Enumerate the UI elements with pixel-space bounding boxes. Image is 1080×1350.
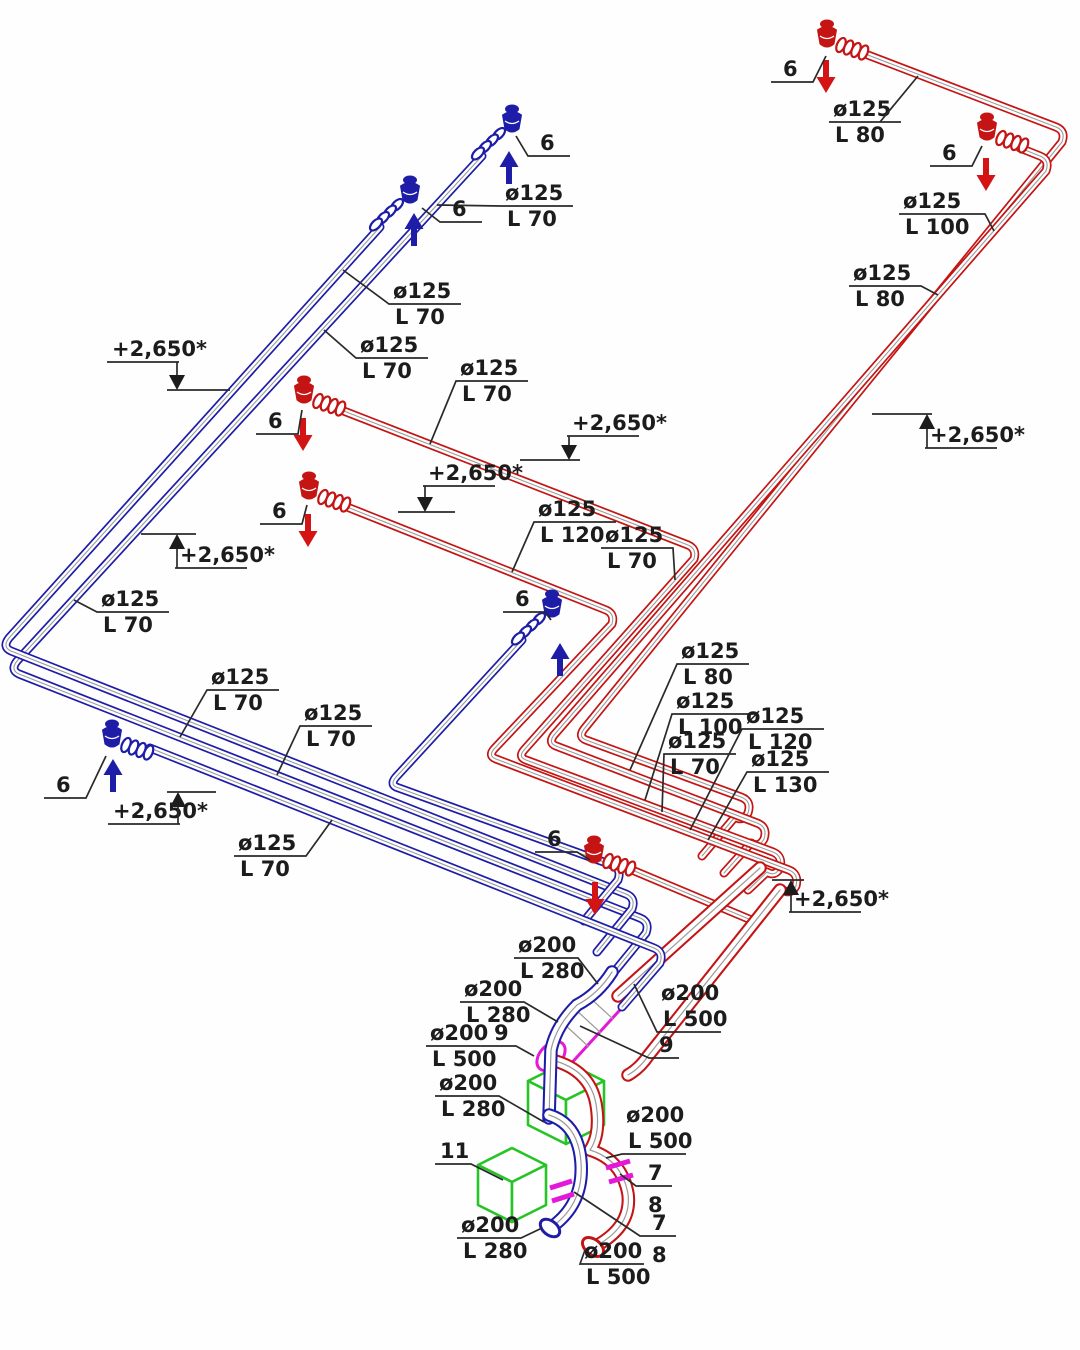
supply-flow-arrow-up — [500, 151, 519, 184]
piping-axonometric-drawing: ø125 L 70 ø125 L 70 ø125 L 70 ø125 L 70 … — [0, 0, 1080, 1350]
drawing-canvas: ø125 L 70 ø125 L 70 ø125 L 70 ø125 L 70 … — [0, 0, 1080, 1350]
svg-text:ø125: ø125 — [393, 279, 451, 303]
svg-text:L 100: L 100 — [905, 215, 970, 239]
svg-text:L 130: L 130 — [753, 773, 818, 797]
svg-text:ø200: ø200 — [626, 1103, 684, 1127]
svg-text:+2,650*: +2,650* — [428, 461, 523, 485]
svg-text:ø200: ø200 — [518, 933, 576, 957]
svg-text:L 70: L 70 — [362, 359, 412, 383]
svg-text:L 70: L 70 — [670, 755, 720, 779]
callout-d125-l100-top: ø125 L 100 — [899, 189, 994, 239]
svg-text:L 80: L 80 — [855, 287, 905, 311]
callout-d200-l500-f: ø200 L 500 — [606, 1103, 693, 1158]
item-6-callout-5: 6 — [256, 409, 302, 434]
svg-text:+2,650*: +2,650* — [930, 423, 1025, 447]
svg-text:ø125: ø125 — [903, 189, 961, 213]
svg-text:ø125: ø125 — [304, 701, 362, 725]
elevation-marker-2: +2,650* — [141, 534, 275, 568]
svg-text:L 500: L 500 — [586, 1265, 651, 1289]
svg-text:ø125: ø125 — [538, 497, 596, 521]
elevation-marker-4: +2,650* — [398, 461, 523, 512]
svg-text:ø200: ø200 — [464, 977, 522, 1001]
svg-text:ø125: ø125 — [751, 747, 809, 771]
svg-text:L 500: L 500 — [628, 1129, 693, 1153]
callout-d125-l70-k: ø125 L 70 — [234, 820, 332, 881]
exhaust-flow-arrow-down — [977, 158, 996, 191]
item-6-callout-8: 6 — [44, 756, 106, 798]
svg-text:11: 11 — [440, 1139, 469, 1163]
svg-text:9: 9 — [494, 1021, 509, 1045]
exhaust-valve-5 — [585, 836, 638, 877]
svg-text:ø125: ø125 — [676, 689, 734, 713]
exhaust-run-top-right — [581, 52, 1063, 856]
svg-text:ø200: ø200 — [430, 1021, 488, 1045]
svg-text:L 70: L 70 — [103, 613, 153, 637]
svg-text:L 80: L 80 — [683, 665, 733, 689]
svg-text:6: 6 — [547, 827, 562, 851]
item-6-callout-4: 6 — [930, 141, 982, 166]
svg-text:L 70: L 70 — [507, 207, 557, 231]
exhaust-valve-1 — [818, 20, 871, 61]
svg-text:6: 6 — [515, 587, 530, 611]
callout-d125-l70-g: ø125 L 70 — [74, 587, 169, 637]
callout-d200-l280-g: ø200 L 280 — [457, 1213, 542, 1263]
svg-text:+2,650*: +2,650* — [113, 799, 208, 823]
supply-diffuser-valve-1 — [470, 105, 522, 162]
svg-text:6: 6 — [268, 409, 283, 433]
svg-text:6: 6 — [272, 499, 287, 523]
svg-text:7: 7 — [648, 1161, 663, 1185]
svg-text:L 280: L 280 — [520, 959, 585, 983]
callout-d200-l500-c: ø200 L 500 — [426, 1021, 534, 1071]
svg-text:ø125: ø125 — [360, 333, 418, 357]
svg-text:L 280: L 280 — [463, 1239, 528, 1263]
exhaust-valve-2 — [978, 113, 1031, 154]
callout-d200-l280-a: ø200 L 280 — [514, 933, 598, 984]
svg-text:ø125: ø125 — [681, 639, 739, 663]
callout-d200-l500-h: ø200 L 500 — [580, 1239, 651, 1289]
svg-text:L 70: L 70 — [213, 691, 263, 715]
svg-text:ø125: ø125 — [460, 356, 518, 380]
svg-text:+2,650*: +2,650* — [112, 337, 207, 361]
svg-text:L 500: L 500 — [663, 1007, 728, 1031]
elevation-marker-5: +2,650* — [872, 414, 1025, 448]
silencer-box-lower — [478, 1148, 546, 1222]
svg-text:L 120: L 120 — [540, 523, 605, 547]
svg-text:ø200: ø200 — [661, 981, 719, 1005]
svg-text:ø125: ø125 — [101, 587, 159, 611]
svg-text:ø125: ø125 — [238, 831, 296, 855]
svg-text:+2,650*: +2,650* — [180, 543, 275, 567]
svg-text:L 70: L 70 — [462, 382, 512, 406]
exhaust-valve-4 — [300, 472, 353, 513]
svg-text:L 80: L 80 — [835, 123, 885, 147]
svg-text:ø200: ø200 — [461, 1213, 519, 1237]
item-9-label-left: 9 — [494, 1021, 509, 1045]
svg-text:L 70: L 70 — [607, 549, 657, 573]
svg-text:ø125: ø125 — [668, 729, 726, 753]
item-6-callout-1: 6 — [516, 131, 570, 156]
svg-text:L 500: L 500 — [432, 1047, 497, 1071]
svg-text:9: 9 — [659, 1033, 674, 1057]
svg-text:6: 6 — [56, 773, 71, 797]
svg-text:ø125: ø125 — [853, 261, 911, 285]
callout-d200-l280-b: ø200 L 280 — [460, 977, 558, 1027]
svg-text:6: 6 — [452, 197, 467, 221]
elevation-marker-1: +2,650* — [107, 337, 230, 390]
svg-text:+2,650*: +2,650* — [794, 887, 889, 911]
callout-d200-l500-d: ø200 L 500 — [634, 981, 728, 1032]
svg-text:6: 6 — [540, 131, 555, 155]
exhaust-flow-arrow-down — [299, 514, 318, 547]
svg-text:8: 8 — [652, 1243, 667, 1267]
svg-text:L 70: L 70 — [240, 857, 290, 881]
svg-text:L 70: L 70 — [306, 727, 356, 751]
svg-text:ø125: ø125 — [505, 181, 563, 205]
callout-d125-l70-b: ø125 L 70 — [343, 270, 461, 329]
svg-text:ø125: ø125 — [833, 97, 891, 121]
callout-d125-l70-c: ø125 L 70 — [324, 330, 428, 383]
exhaust-flow-arrow-down — [817, 60, 836, 93]
svg-text:L 280: L 280 — [441, 1097, 506, 1121]
svg-text:ø125: ø125 — [746, 704, 804, 728]
item-6-callout-6: 6 — [260, 499, 307, 524]
svg-text:ø200: ø200 — [584, 1239, 642, 1263]
svg-text:ø125: ø125 — [605, 523, 663, 547]
elevation-marker-3: +2,650* — [520, 411, 667, 460]
svg-text:6: 6 — [783, 57, 798, 81]
svg-text:ø125: ø125 — [211, 665, 269, 689]
svg-text:L 70: L 70 — [395, 305, 445, 329]
callout-d125-l80-top: ø125 L 80 — [829, 76, 918, 147]
supply-flow-arrow-up — [104, 759, 123, 792]
elevation-marker-6: +2,650* — [108, 792, 216, 824]
svg-text:6: 6 — [942, 141, 957, 165]
callout-d125-l70-d: ø125 L 70 — [430, 356, 528, 444]
svg-text:ø200: ø200 — [439, 1071, 497, 1095]
svg-text:7: 7 — [652, 1211, 667, 1235]
svg-text:+2,650*: +2,650* — [572, 411, 667, 435]
